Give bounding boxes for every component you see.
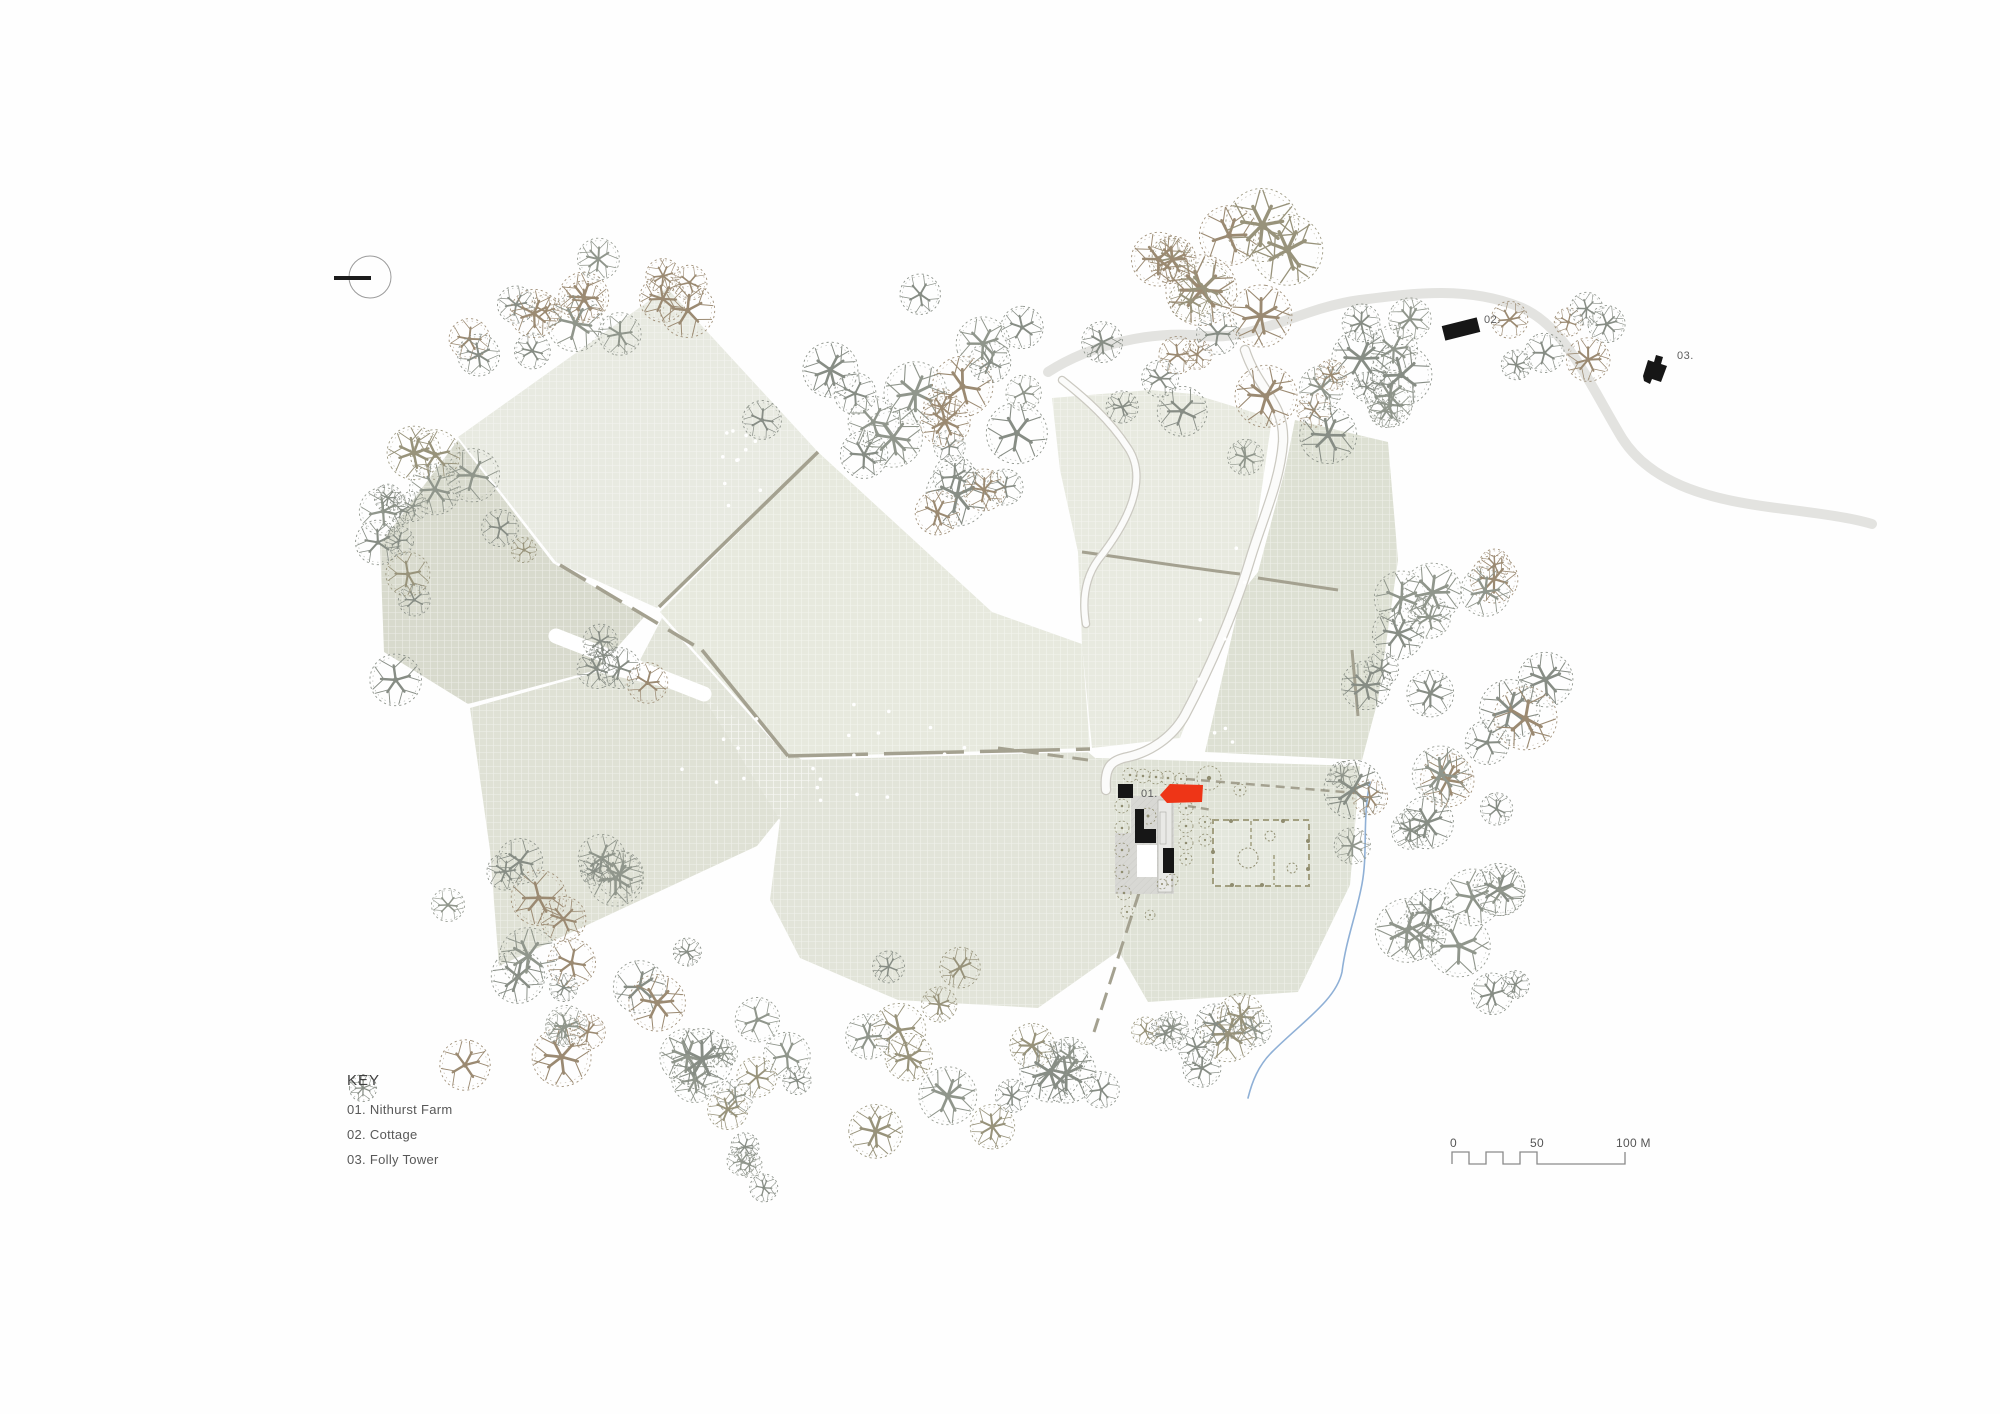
north-arrow	[334, 256, 391, 298]
walled-garden	[1211, 819, 1310, 887]
key-item-folly: 03. Folly Tower	[347, 1152, 453, 1167]
key-item-farm: 01. Nithurst Farm	[347, 1102, 453, 1117]
farm-label: 01.	[1141, 788, 1158, 800]
scale-bar-graphic	[1448, 1149, 1648, 1169]
key-title: KEY	[347, 1072, 453, 1089]
fields-layer	[380, 288, 1398, 1008]
map-layers	[349, 182, 1872, 1207]
map-key: KEY 01. Nithurst Farm 02. Cottage 03. Fo…	[347, 1072, 453, 1177]
store-building	[1163, 848, 1174, 873]
site-plan-svg: 01. 02. 03.	[0, 0, 2000, 1414]
folly-tower-building	[1643, 355, 1667, 384]
barn-building	[1118, 784, 1133, 798]
key-item-cottage: 02. Cottage	[347, 1127, 453, 1142]
scale-bar: 0 50 100 M	[1448, 1136, 1668, 1170]
cottage-building	[1442, 317, 1481, 340]
scale-50: 50	[1530, 1136, 1544, 1150]
folly-label: 03.	[1677, 350, 1694, 362]
scale-0: 0	[1450, 1136, 1457, 1150]
cottage-label: 02.	[1484, 314, 1501, 326]
scale-100: 100 M	[1616, 1136, 1651, 1150]
site-plan: 01. 02. 03. KEY 01. Nithurst Farm 02. Co…	[0, 0, 2000, 1414]
